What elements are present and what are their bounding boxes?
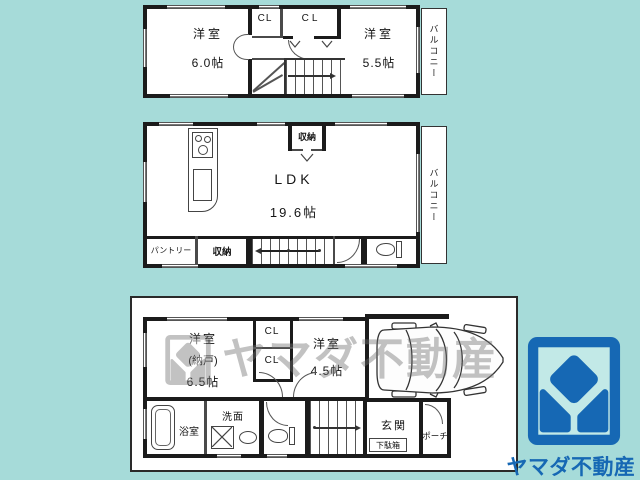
floor3-outline: 洋室 6.0帖 洋室 5.5帖 CL CL: [143, 5, 420, 98]
door-arc: [337, 239, 360, 263]
hanger-mark-icon: [300, 153, 314, 162]
washing-machine-x-icon: [212, 427, 232, 447]
stove: [192, 132, 213, 158]
floor2-balcony: バルコニー: [421, 126, 447, 264]
window: [267, 454, 287, 458]
room-name: 洋室: [313, 335, 341, 352]
balcony-label: バルコニー: [428, 24, 441, 79]
parking-wall: [365, 314, 449, 319]
wall: [253, 347, 293, 349]
window: [299, 317, 343, 321]
window: [350, 5, 406, 9]
window: [335, 122, 387, 126]
room-name: 洋室: [364, 25, 394, 42]
stairs-arrow: [260, 250, 320, 252]
floor1-room-left-label: 洋室 (納戸) 6.5帖: [159, 330, 247, 390]
toilet-tank: [396, 241, 402, 258]
room-name: 洋室: [189, 330, 217, 347]
closet-label: CL: [254, 355, 290, 366]
wall: [361, 236, 367, 264]
kitchen-counter: [188, 128, 218, 212]
stairs-arrow-head: [330, 73, 336, 79]
window: [143, 29, 147, 67]
wall: [337, 9, 341, 38]
stairs-arrow-dot: [287, 249, 290, 252]
window: [217, 454, 241, 458]
window: [159, 122, 193, 126]
window: [143, 162, 147, 202]
door-arc: [259, 372, 283, 397]
wall: [311, 149, 322, 151]
wall: [290, 321, 293, 382]
storage-label: 収納: [289, 130, 325, 143]
closet-label: CL: [250, 13, 280, 24]
floor3-balcony: バルコニー: [421, 8, 447, 95]
ldk-label: LDK: [239, 171, 349, 187]
shoe-box: 下駄箱: [369, 438, 407, 452]
balcony-label: バルコニー: [428, 168, 441, 223]
closet-label: CL: [286, 13, 336, 24]
wall: [283, 36, 293, 39]
window: [170, 94, 228, 98]
window: [167, 317, 227, 321]
toilet-bowl: [268, 429, 288, 443]
ldk-size-label: 19.6帖: [239, 202, 349, 221]
room-name: 洋室: [193, 25, 223, 42]
wall: [292, 149, 303, 151]
room-size: 5.5帖: [363, 54, 396, 71]
window: [162, 264, 198, 268]
wash-basin: [239, 431, 257, 444]
window: [143, 409, 147, 439]
bathtub: [151, 405, 175, 450]
car-icon: [372, 320, 510, 400]
stove-burner: [195, 135, 202, 142]
window: [257, 122, 285, 126]
toilet-tank: [289, 427, 295, 445]
wall: [333, 236, 335, 264]
stairs-arrow: [288, 75, 330, 77]
stove-burner: [204, 136, 211, 143]
stairs-arrow-dot: [313, 426, 316, 429]
stairs-arrow: [315, 427, 355, 429]
stairs-arrow-dot: [318, 249, 321, 252]
porch-label: ポーチ: [421, 430, 449, 442]
balcony-door-window: [416, 154, 420, 232]
floor1-room-right-label: 洋室 4.5帖: [295, 335, 359, 379]
wall: [251, 36, 283, 38]
washing-machine: [211, 426, 234, 449]
window: [259, 5, 279, 9]
stairs-arrow-head: [255, 248, 261, 254]
floorplan-flyer: 洋室 6.0帖 洋室 5.5帖 CL CL: [0, 0, 640, 480]
storage-label: 収納: [198, 244, 246, 258]
room-size: 6.5帖: [187, 373, 220, 390]
closet-label: CL: [254, 326, 290, 337]
window: [345, 264, 397, 268]
toilet-bowl: [376, 243, 395, 256]
floor2-outline: 収納 LDK 19.6帖 パントリー 収納: [143, 122, 420, 268]
floor1-panel: CL CL 洋室 (納戸) 6.5帖 洋室 4.5帖 浴室 洗面: [130, 296, 518, 472]
pantry-label: パントリー: [147, 245, 195, 256]
hanger-mark-icon: [321, 40, 333, 48]
entrance-label: 玄関: [371, 417, 417, 433]
brand-name: ヤマダ不動産: [506, 451, 636, 480]
door-arc: [288, 40, 310, 60]
wall: [314, 36, 341, 39]
wall: [252, 58, 284, 60]
door-arc: [425, 404, 443, 424]
wall: [204, 401, 207, 454]
shoe-box-label: 下駄箱: [376, 440, 400, 451]
window: [167, 5, 225, 9]
room-sub: (納戸): [188, 352, 217, 368]
window: [143, 333, 147, 367]
window: [352, 94, 404, 98]
room-size: 6.0帖: [192, 54, 225, 71]
wall: [419, 402, 423, 454]
balcony-door-window: [416, 27, 420, 73]
door-arc: [266, 402, 288, 426]
wall: [259, 401, 264, 454]
wall: [280, 9, 283, 38]
stove-burner: [198, 145, 208, 155]
kitchen-sink: [193, 169, 212, 201]
stairs-arrow-head: [355, 425, 361, 431]
floor1-outline: CL CL 洋室 (納戸) 6.5帖 洋室 4.5帖 浴室 洗面: [143, 317, 369, 458]
brand-logo-icon: [527, 336, 621, 446]
floor3-room-right-label: 洋室 5.5帖: [347, 25, 411, 71]
bath-label: 浴室: [175, 423, 203, 438]
entrance-block-outline: 玄関 下駄箱 ポーチ: [363, 398, 451, 458]
washroom-label: 洗面: [209, 408, 257, 423]
stairs: [252, 239, 333, 264]
